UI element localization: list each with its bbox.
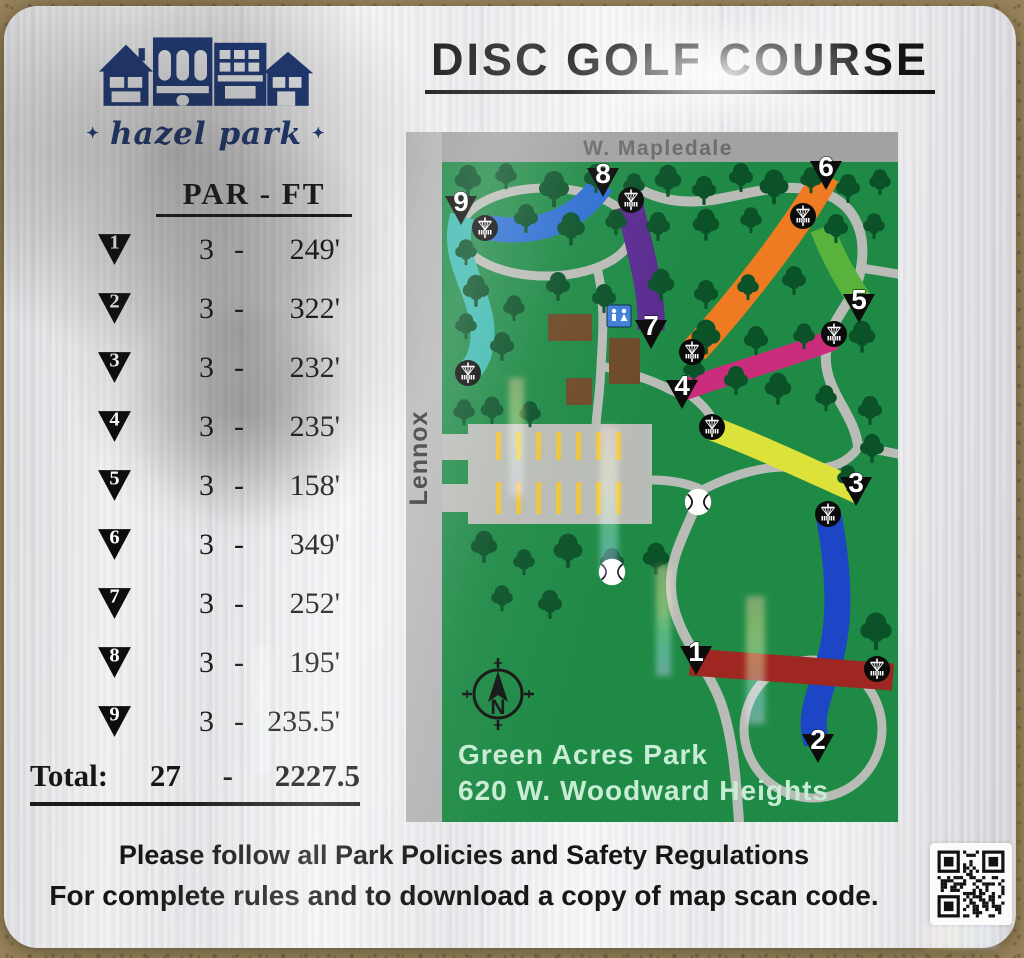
svg-text:3: 3 xyxy=(848,467,864,498)
svg-text:6: 6 xyxy=(109,527,119,548)
hole-distance: 232' xyxy=(290,351,340,385)
separator: - xyxy=(234,587,244,621)
total-par: 27 xyxy=(150,758,181,794)
park-address-label: 620 W. Woodward Heights xyxy=(458,775,829,806)
separator: - xyxy=(234,469,244,503)
basket-icon xyxy=(790,203,816,229)
baseball-icon xyxy=(685,489,711,515)
basket-icon xyxy=(699,414,725,440)
hole-distance: 249' xyxy=(290,233,340,267)
separator: - xyxy=(234,528,244,562)
tee-sign-icon: 2 xyxy=(96,291,133,326)
table-row-hole-2: 2 3-322' xyxy=(32,279,362,338)
svg-text:8: 8 xyxy=(595,158,611,189)
hole-par: 3 xyxy=(199,646,226,680)
parking-lot xyxy=(442,424,652,524)
separator: - xyxy=(234,292,244,326)
hazel-park-logo-script: ✦hazel park✦ xyxy=(56,116,356,152)
hole-par: 3 xyxy=(199,233,226,267)
basket-icon xyxy=(821,321,847,347)
hazel-park-buildings-icon xyxy=(96,32,318,122)
footer-line-1: Please follow all Park Policies and Safe… xyxy=(18,840,910,871)
separator: - xyxy=(234,410,244,444)
hole-par: 3 xyxy=(199,528,226,562)
par-table-header: PAR - FT xyxy=(156,176,352,217)
basket-icon xyxy=(815,501,841,527)
sign-title: DISC GOLF COURSE xyxy=(349,34,1011,94)
qr-code xyxy=(930,843,1012,925)
basket-icon xyxy=(472,215,498,241)
total-label: Total: xyxy=(30,758,108,794)
hole-par: 3 xyxy=(199,292,226,326)
svg-text:2: 2 xyxy=(109,291,119,312)
hole-par: 3 xyxy=(199,410,226,444)
hole-distance: 322' xyxy=(290,292,340,326)
photo-background: ✦hazel park✦ DISC GOLF COURSE PAR - FT 1… xyxy=(0,0,1024,958)
hole-distance: 252' xyxy=(290,587,340,621)
table-row-hole-8: 8 3-195' xyxy=(32,633,362,692)
hole-distance: 349' xyxy=(290,528,340,562)
hole-1-fairway xyxy=(690,662,893,677)
basket-icon xyxy=(679,339,705,365)
course-map: 1 2 3 4 5 6 7 8 9 N W. Mapledale xyxy=(406,128,898,822)
total-distance: 2227.5 xyxy=(275,758,360,794)
svg-text:4: 4 xyxy=(109,409,119,430)
hole-par: 3 xyxy=(199,587,226,621)
svg-text:N: N xyxy=(490,696,505,719)
svg-text:2: 2 xyxy=(810,724,826,755)
hole-distance: 235' xyxy=(290,410,340,444)
table-row-hole-7: 7 3-252' xyxy=(32,574,362,633)
footer-notice: Please follow all Park Policies and Safe… xyxy=(18,840,910,912)
street-label-mapledale: W. Mapledale xyxy=(583,137,733,160)
separator: - xyxy=(234,233,244,267)
svg-text:6: 6 xyxy=(818,151,834,182)
svg-text:7: 7 xyxy=(109,586,119,607)
total-row: Total: 27 - 2227.5 xyxy=(30,758,360,806)
restroom-icon xyxy=(607,305,631,327)
tee-sign-icon: 9 xyxy=(96,704,133,739)
table-row-hole-1: 1 3-249' xyxy=(32,220,362,279)
table-row-hole-6: 6 3-349' xyxy=(32,515,362,574)
basket-icon xyxy=(618,187,644,213)
baseball-icon xyxy=(599,559,625,585)
svg-text:3: 3 xyxy=(109,350,119,371)
svg-text:7: 7 xyxy=(643,310,659,341)
hole-distance: 195' xyxy=(290,646,340,680)
tee-sign-icon: 6 xyxy=(96,527,133,562)
tee-sign-icon: 1 xyxy=(96,232,133,267)
street-label-lennox: Lennox xyxy=(406,411,433,506)
separator: - xyxy=(223,758,233,794)
separator: - xyxy=(234,646,244,680)
separator: - xyxy=(234,351,244,385)
tee-sign-icon: 4 xyxy=(96,409,133,444)
park-name-label: Green Acres Park xyxy=(458,739,708,770)
table-row-hole-5: 5 3-158' xyxy=(32,456,362,515)
svg-text:5: 5 xyxy=(851,284,867,315)
svg-text:8: 8 xyxy=(109,645,119,666)
svg-text:9: 9 xyxy=(453,186,469,217)
svg-text:4: 4 xyxy=(674,370,690,401)
footer-line-2: For complete rules and to download a cop… xyxy=(18,880,910,912)
logo-script-name: hazel park xyxy=(110,116,302,152)
tee-sign-icon: 3 xyxy=(96,350,133,385)
separator: - xyxy=(234,705,244,739)
rainbow-reflection xyxy=(926,924,998,948)
hole-par: 3 xyxy=(199,705,226,739)
table-row-hole-9: 9 3-235.5' xyxy=(32,692,362,751)
table-row-hole-3: 3 3-232' xyxy=(32,338,362,397)
basket-icon xyxy=(455,360,481,386)
svg-text:1: 1 xyxy=(688,636,704,667)
tee-sign-icon: 8 xyxy=(96,645,133,680)
svg-text:5: 5 xyxy=(109,468,119,489)
hole-par: 3 xyxy=(199,469,226,503)
sign-board: ✦hazel park✦ DISC GOLF COURSE PAR - FT 1… xyxy=(4,6,1016,948)
star-icon: ✦ xyxy=(76,124,110,142)
table-row-hole-4: 4 3-235' xyxy=(32,397,362,456)
par-table: 1 3-249' 2 3-322' 3 3-232' 4 3-235' 5 3-… xyxy=(32,220,362,751)
hole-distance: 235.5' xyxy=(267,705,340,739)
tee-sign-icon: 7 xyxy=(96,586,133,621)
hole-par: 3 xyxy=(199,351,226,385)
tee-sign-icon: 5 xyxy=(96,468,133,503)
hole-distance: 158' xyxy=(290,469,340,503)
star-icon: ✦ xyxy=(302,124,336,142)
svg-text:9: 9 xyxy=(109,704,119,725)
basket-icon xyxy=(864,656,890,682)
svg-text:1: 1 xyxy=(109,232,119,253)
